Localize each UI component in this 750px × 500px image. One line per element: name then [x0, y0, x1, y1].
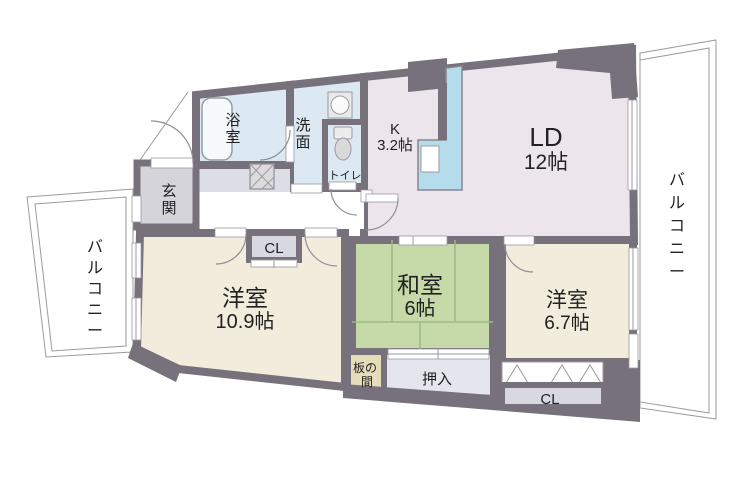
washer-pan-icon [328, 92, 352, 118]
front-door-arc [151, 121, 193, 163]
western-large-size: 10.9帖 [216, 310, 275, 333]
window [132, 196, 141, 222]
floor-plan-svg: 浴室 洗面 トイレ K 3.2帖 LD 12帖 玄関 CL 洋室 10.9帖 和… [0, 0, 750, 500]
bathroom-label: 浴室 [225, 112, 240, 146]
corridor [196, 192, 364, 229]
hall-closet-label: CL [264, 240, 283, 257]
balcony-left-label: バルコニー [87, 239, 103, 340]
balcony-right-label: バルコニー [669, 172, 685, 281]
oshiire-label: 押入 [422, 371, 452, 388]
corridor-door [305, 228, 337, 237]
japanese-room-size: 6帖 [404, 297, 435, 320]
washing-machine-pan-icon [250, 164, 274, 189]
entrance-label: 玄関 [161, 183, 176, 217]
western-large-label: 洋室 [222, 285, 268, 311]
toilet-icon [334, 127, 352, 160]
western-large-door [215, 228, 246, 237]
floor-plan: 浴室 洗面 トイレ K 3.2帖 LD 12帖 玄関 CL 洋室 10.9帖 和… [0, 0, 750, 500]
washroom-label: 洗面 [295, 117, 310, 151]
itanoma-label-2: 間 [361, 375, 373, 389]
front-door [151, 158, 193, 168]
itanoma-label-1: 板の [353, 361, 377, 375]
kitchen-size: 3.2帖 [377, 137, 413, 154]
balcony-left [27, 189, 133, 357]
western-small-label: 洋室 [546, 289, 588, 312]
western-small-door [504, 236, 534, 245]
living-dining-size: 12帖 [524, 151, 568, 174]
sink-icon [421, 146, 439, 172]
living-dining-label: LD [529, 122, 562, 152]
wall-block-bottom-right [603, 360, 640, 420]
bedroom-closet-label: CL [540, 391, 559, 408]
japanese-room-label: 和室 [397, 272, 443, 298]
western-small-size: 6.7帖 [544, 312, 589, 334]
toilet-label: トイレ [329, 170, 362, 182]
window [629, 334, 638, 368]
toilet-door [329, 182, 356, 190]
washroom-door [291, 184, 322, 193]
sliding-door-japanese [399, 236, 447, 245]
corridor-step-strip [199, 169, 290, 192]
kitchen-label: K [390, 121, 400, 138]
entrance-approach [140, 92, 193, 168]
